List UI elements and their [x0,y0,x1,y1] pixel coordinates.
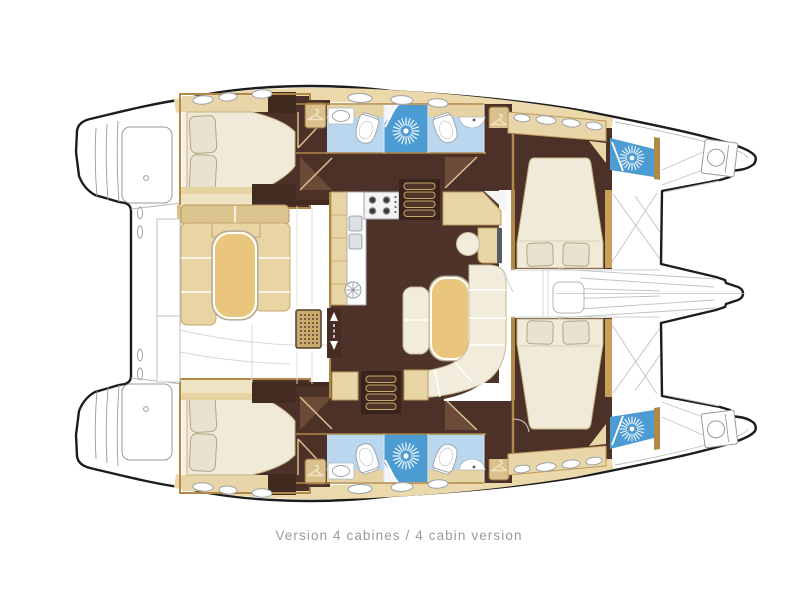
svg-text:Version 4 cabines / 4 cabin ve: Version 4 cabines / 4 cabin version [275,528,522,543]
